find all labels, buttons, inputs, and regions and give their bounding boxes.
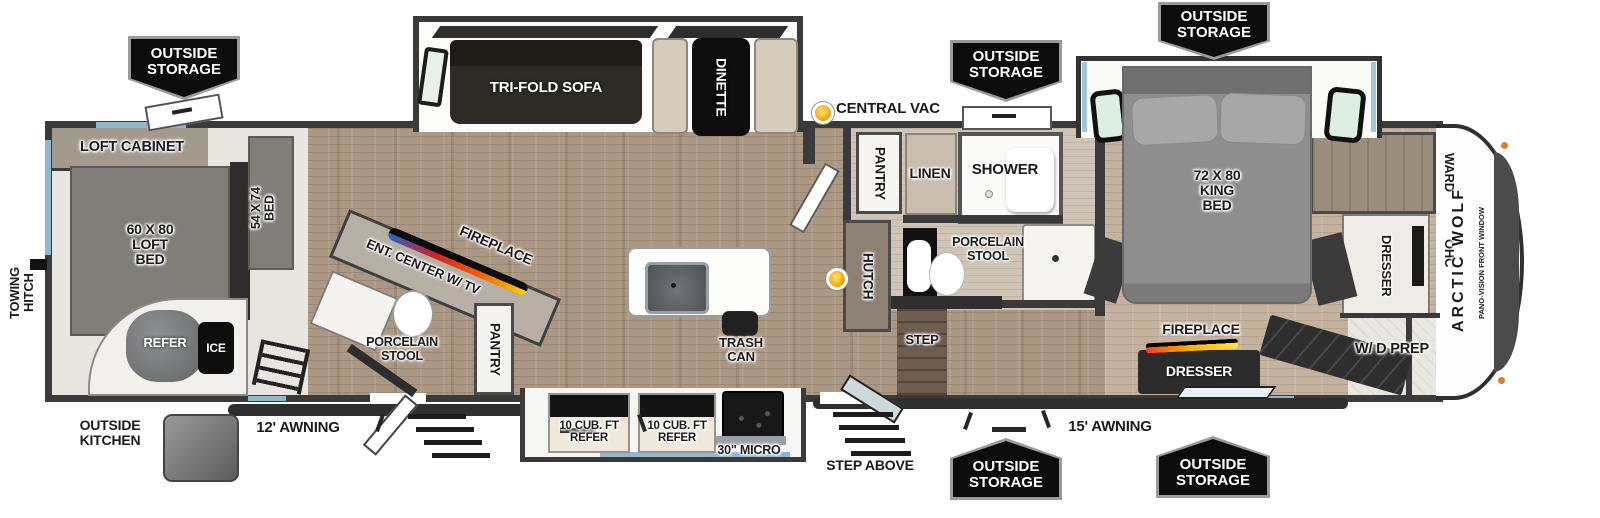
pantry-2-label: PANTRY	[872, 147, 887, 200]
entry2-steps	[833, 410, 913, 464]
bath-bottom-wall	[1000, 300, 1100, 308]
dresser-glass-shelf	[1175, 386, 1276, 399]
bath-mid-wall	[903, 215, 1063, 223]
outside-kitchen-label: OUTSIDE KITCHEN	[56, 418, 164, 448]
step-walkway	[897, 309, 947, 395]
central-vac-indicator-icon	[812, 102, 834, 124]
bedroom-slide-accent-right	[1371, 62, 1376, 132]
vanity-faucet	[1052, 255, 1059, 262]
shower-label: SHOWER	[962, 162, 1048, 178]
pantry-cabinet-2: PANTRY	[856, 132, 902, 214]
badge-outside-storage-bottom-front: OUTSIDE STORAGE	[1156, 436, 1270, 498]
king-pillow-right	[1219, 93, 1307, 146]
pantry-1-label: PANTRY	[487, 323, 502, 376]
dinette-bench-right	[754, 38, 798, 134]
bath-stub-wall	[803, 128, 815, 164]
sink-drain	[671, 283, 676, 288]
bedroom-window-right	[1323, 86, 1366, 144]
fireplace-bedroom-label: FIREPLACE	[1146, 322, 1256, 337]
bedroom-slide-accent-left	[1082, 62, 1087, 132]
dinette-bench-left	[652, 38, 688, 134]
bunk-bed-54-label: 54 X 74 BED	[250, 158, 292, 258]
outside-kitchen-box	[163, 414, 239, 482]
awning-12-label: 12' AWNING	[238, 420, 358, 436]
loft-bed-label: 60 X 80 LOFT BED	[100, 222, 200, 267]
linen-label: LINEN	[900, 166, 960, 181]
shower-drain	[985, 190, 993, 198]
slideout-window-strip-right	[668, 26, 788, 38]
tri-fold-sofa-label: TRI-FOLD SOFA	[460, 80, 632, 96]
towing-hitch-label: TOWING HITCH	[8, 262, 48, 324]
bedroom-dresser-label: DRESSER	[1379, 235, 1393, 296]
entry-steps	[408, 412, 498, 468]
refer-left-label: 10 CUB. FT REFER	[548, 420, 630, 445]
garage-partition-wall	[230, 162, 250, 320]
slideout-window-strip-left	[432, 26, 658, 38]
brand-label: ARCTIC WOLF	[1450, 168, 1478, 352]
window-bottom-left	[248, 396, 286, 401]
toilet-tank	[907, 240, 931, 292]
king-bed-label: 72 X 80 KING BED	[1170, 168, 1264, 213]
king-pillow-left	[1131, 94, 1219, 146]
porcelain-stool-1-label: PORCELAIN STOOL	[356, 336, 448, 363]
dinette-table: DINETTE	[692, 38, 750, 136]
dinette-label: DINETTE	[713, 58, 728, 117]
badge-outside-storage-bottom-mid: OUTSIDE STORAGE	[950, 438, 1062, 500]
badge-outside-storage-front-top: OUTSIDE STORAGE	[1158, 2, 1270, 60]
microwave-label: 30" MICRO	[702, 444, 796, 458]
pantry-cabinet-1: PANTRY	[474, 303, 514, 395]
microwave-range	[722, 391, 784, 441]
bedroom-tv	[1412, 226, 1424, 286]
utility-indicator-icon	[826, 268, 848, 290]
wardrobe-cabinet	[1310, 132, 1436, 214]
cap-marker-light-bottom	[1498, 377, 1505, 384]
central-vac-label: CENTRAL VAC	[836, 101, 996, 117]
outside-refer-label: REFER	[134, 336, 196, 350]
wd-prep-label: W/ D PREP	[1346, 342, 1438, 358]
loft-cabinet-label: LOFT CABINET	[62, 140, 202, 156]
cap-marker-light-top	[1501, 142, 1508, 149]
trash-can	[722, 311, 758, 336]
badge-outside-storage-rear: OUTSIDE STORAGE	[128, 36, 240, 100]
pano-vision-label: PANO-VISION FRONT WINDOW	[1478, 188, 1493, 338]
rv-floorplan: TOWING HITCH LOFT CABINET 60 X 80 LOFT B…	[0, 0, 1600, 518]
ice-maker-label: ICE	[206, 342, 225, 355]
badge-outside-storage-mid: OUTSIDE STORAGE	[950, 40, 1062, 102]
ice-maker: ICE	[198, 322, 234, 374]
refer-right-label: 10 CUB. FT REFER	[638, 420, 716, 445]
half-bath-toilet	[392, 290, 434, 338]
shower-seat	[1006, 148, 1054, 212]
awning-15-label: 15' AWNING	[1052, 419, 1168, 435]
window-left-wall	[45, 140, 51, 255]
pano-vision-window-band	[1494, 152, 1519, 372]
fireplace-dresser-label: DRESSER	[1166, 364, 1232, 379]
wd-wall-horizontal	[1340, 313, 1440, 318]
porcelain-stool-2-label: PORCELAIN STOOL	[942, 236, 1034, 263]
step-label: STEP	[896, 333, 948, 347]
trash-can-label: TRASH CAN	[702, 336, 780, 364]
hutch-label: HUTCH	[860, 253, 875, 299]
island-sink	[645, 262, 709, 314]
step-above-label: STEP ABOVE	[812, 458, 928, 473]
loft-ladder	[252, 339, 310, 394]
hutch: HUTCH	[843, 220, 891, 332]
